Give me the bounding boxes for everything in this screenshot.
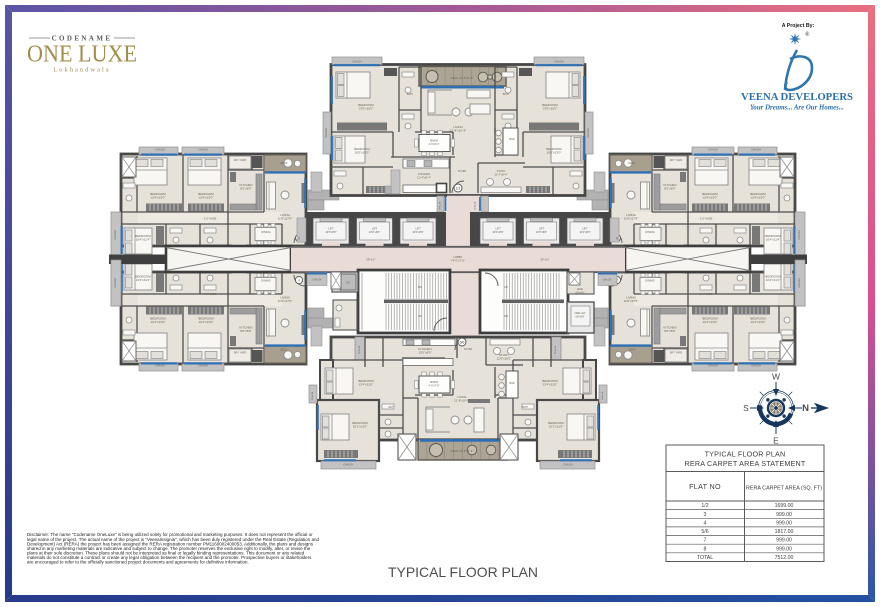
svg-text:DINING: DINING (645, 279, 654, 283)
svg-text:11'6"x10'0": 11'6"x10'0" (497, 356, 512, 360)
svg-text:BAR: BAR (509, 382, 514, 385)
svg-text:1/2: 1/2 (456, 187, 461, 191)
svg-text:LIFT: LIFT (539, 227, 545, 231)
svg-text:DECK 21'-8"x4'-6": DECK 21'-8"x4'-6" (451, 449, 474, 453)
svg-text:CHAJJA: CHAJJA (113, 278, 117, 288)
svg-text:TOTAL: TOTAL (697, 555, 713, 561)
svg-text:13'4"x11'0": 13'4"x11'0" (359, 382, 374, 386)
svg-text:13'0"x10'0": 13'0"x10'0" (359, 106, 374, 110)
svg-text:ENT: ENT (389, 406, 394, 409)
svg-text:RERA CARPET AREA (SQ. FT): RERA CARPET AREA (SQ. FT) (746, 486, 822, 492)
svg-text:FOYER: FOYER (464, 348, 473, 351)
svg-text:ONE LUXE: ONE LUXE (27, 41, 137, 68)
svg-text:TYPICAL FLOOR PLAN: TYPICAL FLOOR PLAN (705, 450, 786, 459)
svg-text:CHAJJA: CHAJJA (554, 60, 564, 64)
svg-text:CHAJJA: CHAJJA (358, 345, 361, 354)
svg-text:1817.00: 1817.00 (775, 529, 794, 535)
svg-text:8: 8 (704, 546, 707, 552)
svg-text:®: ® (805, 31, 810, 38)
svg-text:10'4"x11'4": 10'4"x11'4" (136, 237, 151, 241)
svg-text:4'-6"x8'-4": 4'-6"x8'-4" (429, 143, 440, 146)
svg-text:CHAJJA: CHAJJA (586, 128, 590, 138)
svg-text:999.00: 999.00 (776, 512, 792, 518)
svg-text:DRY YARD: DRY YARD (234, 352, 247, 355)
svg-text:CHAJJA: CHAJJA (324, 128, 328, 138)
svg-text:13'0"x10'0": 13'0"x10'0" (543, 106, 558, 110)
svg-text:7512.00: 7512.00 (775, 555, 794, 561)
svg-text:CHAJJA: CHAJJA (708, 148, 718, 152)
svg-text:10'4"x13'0": 10'4"x13'0" (151, 195, 166, 199)
svg-text:BAR: BAR (509, 138, 514, 141)
svg-text:8'0"x8'0": 8'0"x8'0" (664, 186, 675, 190)
svg-text:DRY YARD: DRY YARD (670, 159, 683, 162)
svg-text:DECK: DECK (281, 162, 288, 165)
svg-text:10'0"x13'0": 10'0"x13'0" (547, 150, 562, 154)
svg-text:10'4"x13'0": 10'4"x13'0" (199, 195, 214, 199)
svg-text:DECK 21'-8"x4'-6": DECK 21'-8"x4'-6" (451, 76, 474, 80)
svg-text:CHAJJA: CHAJJA (601, 391, 604, 400)
svg-text:21'-8"x10'-8": 21'-8"x10'-8" (454, 398, 470, 402)
svg-text:DINING: DINING (645, 230, 654, 234)
svg-text:BATH: BATH (503, 93, 510, 96)
svg-text:10'4"x13'0": 10'4"x13'0" (199, 320, 214, 324)
svg-text:999.00: 999.00 (776, 520, 792, 526)
svg-text:10'0"x8'6": 10'0"x8'6" (492, 230, 503, 234)
svg-text:LIFT: LIFT (328, 227, 334, 231)
svg-text:LIFT: LIFT (415, 227, 421, 231)
svg-text:10'0"x8'6": 10'0"x8'6" (536, 230, 547, 234)
svg-text:4: 4 (704, 520, 707, 526)
svg-text:FLAT NO: FLAT NO (689, 482, 721, 491)
svg-text:DECK: DECK (281, 349, 288, 352)
svg-text:7: 7 (616, 278, 618, 282)
svg-text:10'4"x11'4": 10'4"x11'4" (136, 278, 151, 282)
svg-text:3'-6" WIDE: 3'-6" WIDE (204, 292, 217, 296)
svg-text:DN: DN (418, 285, 422, 289)
svg-text:FOYER: FOYER (458, 170, 467, 173)
svg-text:W: W (772, 372, 780, 382)
svg-text:VEENA DEVELOPERS: VEENA DEVELOPERS (741, 91, 853, 103)
svg-text:3'-6" WIDE: 3'-6" WIDE (700, 217, 713, 221)
svg-text:CHAJJA: CHAJJA (708, 364, 718, 368)
svg-text:CHAJJA: CHAJJA (198, 148, 208, 152)
svg-text:3: 3 (704, 512, 707, 518)
svg-text:10'0"x8'6": 10'0"x8'6" (369, 230, 380, 234)
svg-text:STUDY: STUDY (497, 169, 506, 173)
svg-text:are encouraged to refer to the: are encouraged to refer to the officiall… (27, 560, 249, 565)
svg-text:CHAJJA: CHAJJA (563, 463, 573, 467)
svg-text:8'0"x8'0": 8'0"x8'0" (240, 186, 251, 190)
svg-text:Lokhandwala: Lokhandwala (53, 67, 110, 74)
svg-text:DECK: DECK (629, 349, 636, 352)
svg-text:6'8"x4'0": 6'8"x4'0" (575, 291, 584, 294)
svg-text:N: N (802, 403, 809, 414)
svg-text:6'8"x6'8": 6'8"x6'8" (575, 315, 584, 318)
svg-text:ED: ED (346, 281, 350, 285)
svg-text:10'4"x13'0": 10'4"x13'0" (703, 195, 718, 199)
svg-text:A Project By:: A Project By: (782, 23, 815, 29)
svg-text:BATH: BATH (522, 406, 528, 409)
svg-text:8: 8 (616, 236, 618, 240)
svg-text:10'4"x13'0": 10'4"x13'0" (751, 320, 766, 324)
svg-text:LIFT: LIFT (582, 227, 588, 231)
svg-text:8'0"x8'0": 8'0"x8'0" (664, 329, 675, 333)
svg-text:11'0"x17'6": 11'0"x17'6" (278, 216, 293, 220)
svg-text:E: E (773, 436, 779, 446)
svg-text:11'0"x17'6": 11'0"x17'6" (624, 299, 639, 303)
svg-text:5/6: 5/6 (460, 341, 465, 345)
svg-text:CHAJJA: CHAJJA (343, 463, 353, 467)
svg-text:4'-6"x7'-8": 4'-6"x7'-8" (429, 384, 440, 387)
svg-text:UP: UP (418, 314, 422, 318)
svg-text:CHAJJA: CHAJJA (751, 148, 761, 152)
svg-text:UP: UP (504, 285, 508, 289)
svg-text:10'1"x11'0": 10'1"x11'0" (549, 424, 564, 428)
svg-text:CHAJJA: CHAJJA (797, 278, 801, 288)
svg-text:999.00: 999.00 (776, 538, 792, 544)
svg-text:10'4"x11'4": 10'4"x11'4" (766, 237, 781, 241)
svg-text:3: 3 (298, 236, 300, 240)
svg-text:4: 4 (298, 278, 300, 282)
svg-text:10'4"x11'4": 10'4"x11'4" (766, 278, 781, 282)
svg-text:CHAJJA: CHAJJA (352, 60, 362, 64)
svg-text:CHAJJA: CHAJJA (155, 364, 165, 368)
svg-text:10'0"x8'6": 10'0"x8'6" (412, 230, 423, 234)
svg-text:CHAJJA: CHAJJA (554, 345, 557, 354)
svg-text:LIFT: LIFT (495, 227, 501, 231)
svg-text:DINING: DINING (261, 230, 270, 234)
svg-text:3'-6" WIDE: 3'-6" WIDE (204, 217, 217, 221)
svg-text:999.00: 999.00 (776, 546, 792, 552)
svg-text:CHAJJA: CHAJJA (198, 364, 208, 368)
svg-text:DRY YARD: DRY YARD (670, 352, 683, 355)
svg-text:11'0"x17'6": 11'0"x17'6" (278, 299, 293, 303)
svg-text:10'4"x13'0": 10'4"x13'0" (703, 320, 718, 324)
svg-text:10'4"x13'0": 10'4"x13'0" (151, 320, 166, 324)
svg-text:13'0"x8'0": 13'0"x8'0" (418, 350, 431, 354)
svg-text:1/2: 1/2 (701, 503, 708, 509)
svg-text:CHAJJA: CHAJJA (311, 391, 314, 400)
svg-text:39'-1¾": 39'-1¾" (540, 258, 549, 262)
svg-text:CHAJJA: CHAJJA (439, 201, 442, 210)
svg-text:CHAJJA: CHAJJA (312, 279, 321, 282)
svg-text:CHAJJA: CHAJJA (155, 148, 165, 152)
svg-text:CHAJJA: CHAJJA (474, 201, 477, 210)
svg-text:10'4"x13'0": 10'4"x13'0" (751, 195, 766, 199)
svg-text:10'0"x13'0": 10'0"x13'0" (355, 150, 370, 154)
svg-text:74'-0"x7'-0": 74'-0"x7'-0" (451, 258, 465, 262)
svg-text:CHAJJA: CHAJJA (751, 364, 761, 368)
svg-text:Your Dreams... Are Our Homes..: Your Dreams... Are Our Homes... (750, 104, 844, 112)
svg-text:CHAJJA: CHAJJA (797, 230, 801, 240)
svg-text:5/6: 5/6 (701, 529, 708, 535)
svg-text:1699.00: 1699.00 (775, 503, 794, 509)
svg-text:8'0"x8'0": 8'0"x8'0" (240, 329, 251, 333)
svg-text:7: 7 (704, 538, 707, 544)
svg-text:39'-1¾": 39'-1¾" (366, 258, 375, 262)
svg-text:10'0"x8'6": 10'0"x8'6" (325, 230, 336, 234)
svg-text:11'-4"x8'-4": 11'-4"x8'-4" (495, 172, 508, 176)
svg-text:10'1"x11'0": 10'1"x11'0" (353, 424, 368, 428)
svg-text:11'0"x17'6": 11'0"x17'6" (624, 216, 639, 220)
svg-text:10'0"x8'6": 10'0"x8'6" (579, 230, 590, 234)
svg-text:DN: DN (504, 314, 508, 318)
svg-text:13'4"x11'0": 13'4"x11'0" (543, 382, 558, 386)
svg-text:CHAJJA: CHAJJA (602, 279, 611, 282)
svg-text:11'-4"x8'-4": 11'-4"x8'-4" (417, 175, 431, 179)
svg-text:LIFT: LIFT (372, 227, 378, 231)
svg-text:BATH: BATH (407, 93, 414, 96)
svg-text:DECK: DECK (629, 162, 636, 165)
svg-text:CHAJJA: CHAJJA (113, 230, 117, 240)
svg-text:TYPICAL FLOOR PLAN: TYPICAL FLOOR PLAN (388, 565, 538, 580)
svg-text:3'-6" WIDE: 3'-6" WIDE (700, 292, 713, 296)
svg-text:DINING: DINING (261, 279, 270, 283)
svg-text:DRY YARD: DRY YARD (234, 159, 247, 162)
svg-text:S: S (743, 403, 749, 413)
svg-text:21'-8"x10'-8": 21'-8"x10'-8" (450, 128, 467, 132)
svg-text:RERA CARPET AREA STATEMENT: RERA CARPET AREA STATEMENT (684, 459, 805, 468)
